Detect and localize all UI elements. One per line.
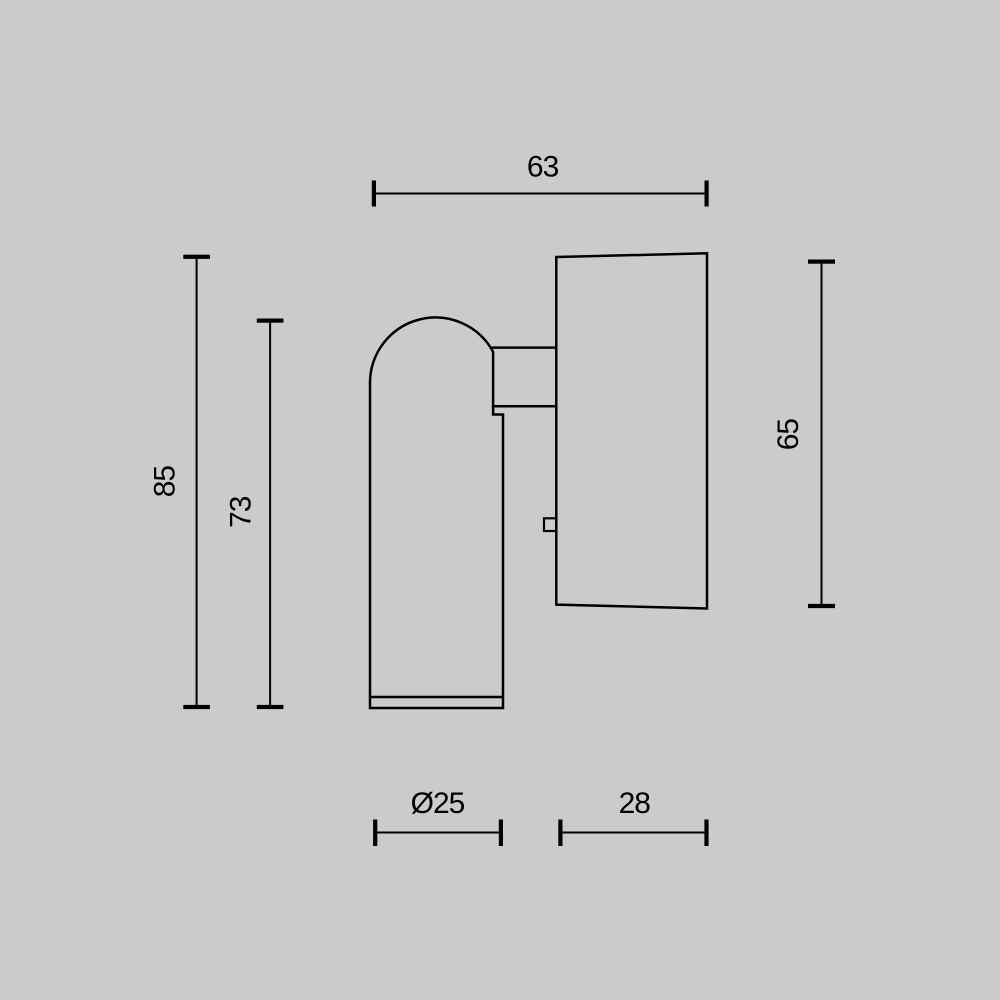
svg-text:28: 28 [619,787,651,820]
svg-text:63: 63 [527,151,559,184]
svg-text:73: 73 [224,496,257,528]
svg-text:65: 65 [772,419,805,451]
svg-text:85: 85 [148,466,181,498]
svg-text:Ø25: Ø25 [411,787,465,820]
